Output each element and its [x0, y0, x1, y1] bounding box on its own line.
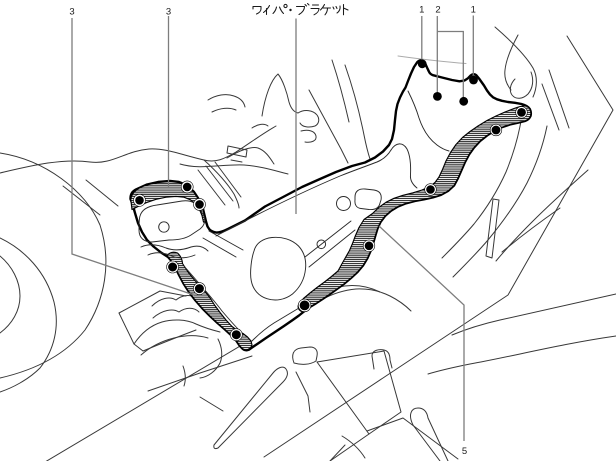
- svg-text:3: 3: [69, 7, 74, 18]
- svg-text:1: 1: [471, 5, 476, 16]
- svg-text:5: 5: [462, 446, 467, 457]
- svg-text:1: 1: [419, 5, 424, 16]
- svg-text:3: 3: [166, 7, 171, 18]
- svg-text:2: 2: [435, 5, 440, 16]
